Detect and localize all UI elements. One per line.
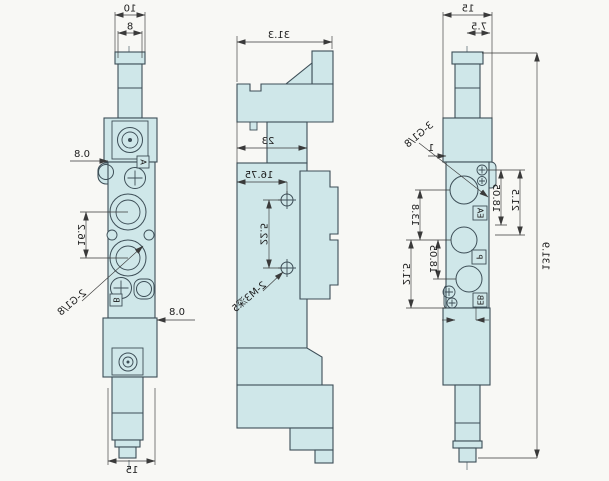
side-dim313-text: 31.3: [268, 30, 290, 41]
drawing-canvas: A B 10: [0, 0, 609, 481]
front-side-tab-left: [144, 230, 154, 240]
side-upper-body: [237, 84, 333, 122]
back-solenoid-block: [443, 118, 492, 162]
front-spacing-text: 16.2: [75, 224, 86, 246]
back-bottom-lip: [453, 441, 482, 448]
front-bottom-lip: [115, 440, 140, 447]
front-bottom-foot: [119, 447, 136, 458]
front-bottom-stem: [112, 377, 143, 440]
back-dim15-text: 15: [462, 4, 475, 15]
front-offset-bottom-text: 0.8: [169, 307, 185, 318]
side-dim225-text: 22.5: [258, 223, 269, 245]
side-base: [237, 385, 333, 428]
back-view: EA P EB 15 7.5 1 3-G1/8: [400, 4, 551, 471]
front-end-block: [103, 318, 157, 377]
side-view: 31.3 23 16.75 22.5 2-M3深5: [230, 30, 338, 463]
side-lower-body: [237, 348, 322, 385]
port-ea-label: EA: [476, 207, 485, 218]
back-dim-port-top-text: 13.8: [409, 204, 420, 226]
front-thread-label: 2-G1/8: [56, 288, 89, 318]
back-stem-cap: [452, 52, 483, 64]
back-bottom-foot: [459, 448, 476, 462]
port-a-label: A: [139, 159, 148, 165]
port-eb-label: EB: [476, 295, 485, 306]
technical-drawing: A B 10: [0, 0, 609, 481]
front-stem-cap: [115, 52, 145, 64]
back-dim-side-inner-text: 18.05: [490, 184, 501, 213]
front-dim10-text: 10: [124, 4, 137, 15]
front-override-dot: [128, 138, 132, 142]
side-main-body: [237, 163, 307, 348]
back-height-text: 131.9: [540, 242, 551, 271]
front-dim8-text: 8: [127, 22, 133, 33]
front-side-tab-right: [107, 230, 117, 240]
front-stem: [118, 64, 142, 118]
side-top-slant: [286, 63, 312, 84]
back-dim-port-mid-text: 18.05: [427, 245, 438, 274]
back-stem: [455, 64, 480, 118]
front-offset-top-text: 0.8: [74, 149, 90, 160]
port-p-label: P: [475, 254, 484, 259]
front-dim15-text: 15: [126, 465, 139, 476]
side-base-foot: [315, 450, 333, 463]
back-dim75-text: 7.5: [471, 22, 487, 33]
side-dim23-text: 23: [262, 136, 275, 147]
side-small-step: [250, 122, 257, 130]
side-dim1675-text: 16.75: [245, 170, 274, 181]
front-view: A B 10: [56, 4, 195, 477]
back-end-block: [443, 308, 490, 385]
back-dim-side-outer-text: 21.5: [509, 189, 520, 211]
front-end-screw-dot: [127, 361, 130, 364]
port-b-label: B: [112, 297, 121, 303]
mirrored-drawing-group: A B 10: [56, 4, 551, 477]
side-top-block: [312, 51, 333, 84]
back-bottom-stem: [455, 385, 480, 441]
back-dim-port-outer-text: 21.5: [400, 263, 411, 285]
side-connector-block: [300, 171, 338, 299]
side-base-step: [290, 428, 333, 450]
